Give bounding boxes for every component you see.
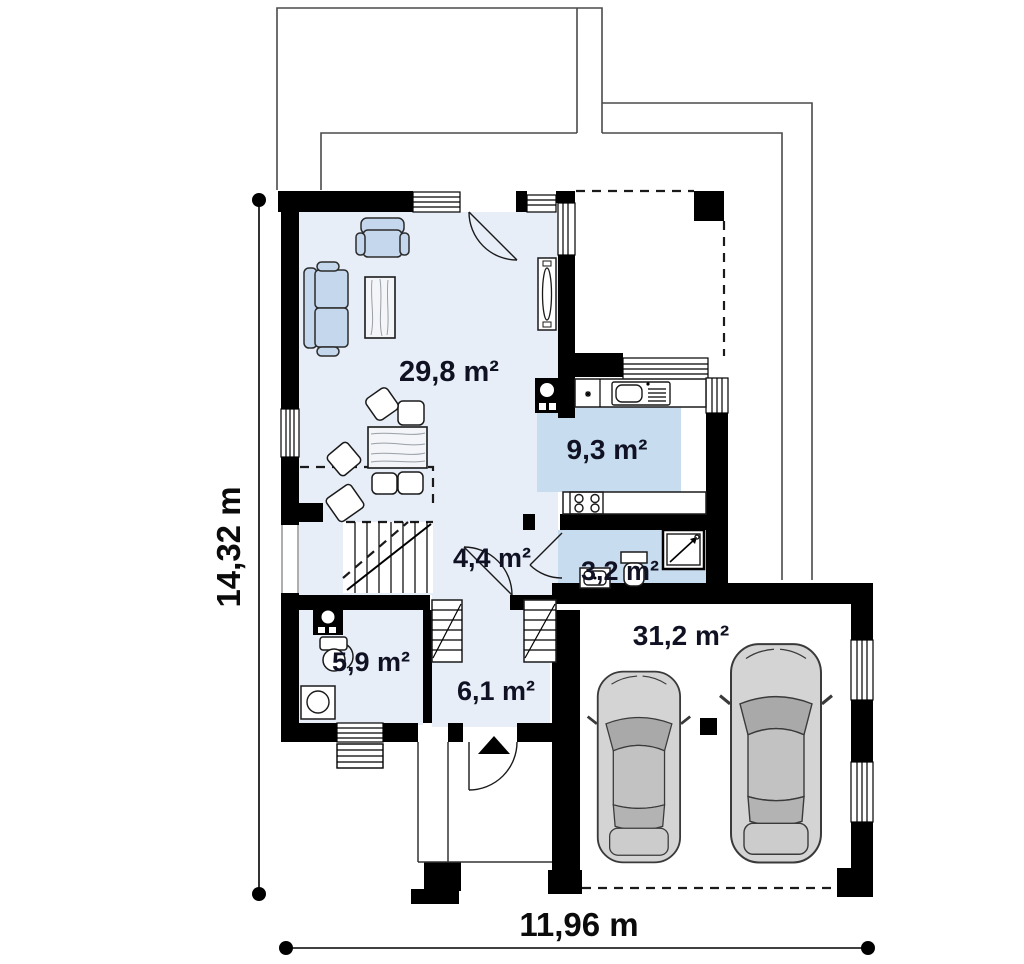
dimension-left: 14,32 m	[210, 193, 266, 901]
wardrobe-right	[524, 600, 556, 662]
stairs	[343, 522, 433, 593]
living-north-window	[413, 192, 460, 212]
kitchen-area-label: 9,3 m²	[567, 434, 648, 465]
sofa	[304, 262, 348, 356]
shower	[663, 530, 704, 569]
drain-symbol	[585, 391, 591, 397]
washing-machine	[301, 686, 335, 719]
bathroom-area-label: 5,9 m²	[332, 647, 410, 677]
garage-east-window-1	[851, 640, 873, 700]
garage-area-label: 31,2 m²	[633, 620, 730, 651]
entry-hall-area-label: 6,1 m²	[457, 676, 535, 706]
terrace-column	[694, 191, 724, 221]
garage-pillar-dot	[700, 718, 717, 735]
car-left	[588, 672, 690, 863]
bathroom-south-window	[337, 723, 383, 742]
dining-table	[368, 427, 427, 468]
kitchen-counter-top	[575, 379, 706, 407]
stair-wall-strip	[282, 525, 298, 593]
fireplace	[535, 378, 559, 413]
living-west-window	[281, 409, 299, 457]
entrance-arrow	[478, 736, 510, 754]
floor-plan-page: 29,8 m² 9,3 m² 4,4 m² 3,2 m² 5,9 m² 6,1 …	[0, 0, 1024, 964]
wc-area-label: 3,2 m²	[581, 556, 659, 586]
hallway-area-label: 4,4 m²	[453, 543, 531, 573]
height-dimension-label: 14,32 m	[210, 486, 247, 607]
garage	[582, 644, 837, 888]
terrace	[576, 191, 724, 356]
porch	[418, 736, 552, 862]
living-room-area-label: 29,8 m²	[399, 356, 499, 388]
garage-east-window-2	[851, 762, 873, 822]
car-right	[720, 644, 832, 862]
floor-plan-svg: 29,8 m² 9,3 m² 4,4 m² 3,2 m² 5,9 m² 6,1 …	[0, 0, 1024, 964]
tv-console	[538, 258, 556, 330]
light-well	[337, 744, 383, 768]
dimension-bottom: 11,96 m	[279, 906, 875, 955]
coffee-table	[365, 277, 395, 338]
kitchen-counter-bottom	[563, 492, 706, 514]
width-dimension-label: 11,96 m	[519, 906, 638, 943]
wardrobe-left	[432, 600, 462, 662]
armchair	[356, 218, 409, 257]
boiler	[313, 608, 343, 635]
